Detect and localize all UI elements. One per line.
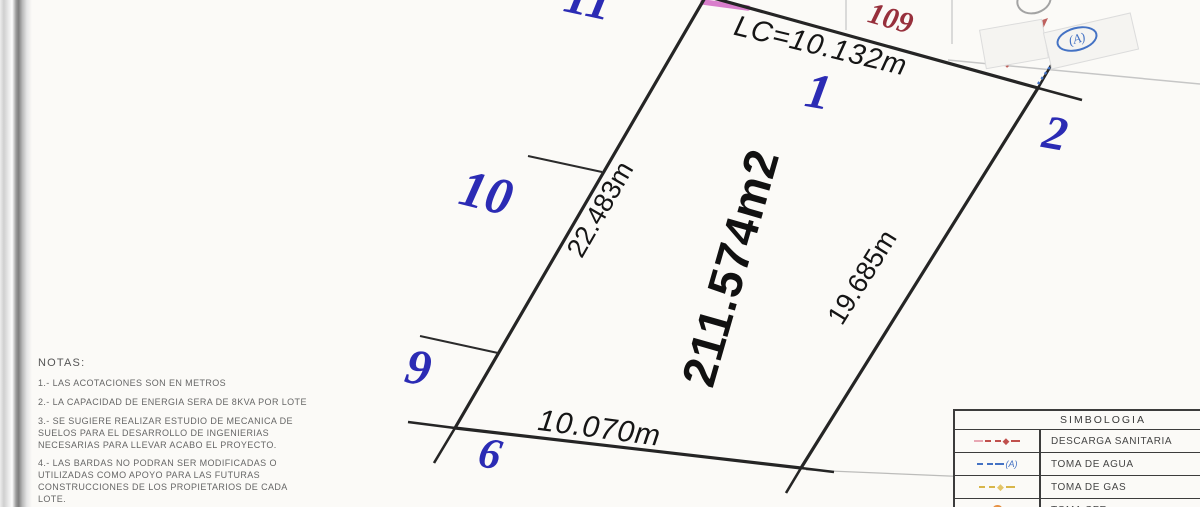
gold-dash-icon — [1006, 486, 1015, 488]
site-plan-canvas: (A) 11 1 2 10 9 6 109 LC=10.132m 22.483m… — [0, 0, 1200, 507]
legend-label: TOMA DE GAS — [1041, 476, 1200, 498]
blue-dash-icon — [995, 463, 1004, 465]
gold-dash-icon — [979, 486, 995, 488]
note-item: 2.- LA CAPACIDAD DE ENERGIA SERA DE 8KVA… — [38, 397, 430, 409]
legend-label: DESCARGA SANITARIA — [1041, 430, 1200, 452]
red-diamond-icon: ◆ — [1003, 437, 1010, 446]
corner-extension — [434, 428, 455, 463]
corner-extension — [801, 468, 834, 472]
blue-dash-icon — [977, 463, 993, 465]
toma-gas-symbol: ◆ — [955, 476, 1041, 498]
toma-agua-symbol: (A) — [955, 453, 1041, 475]
legend-row-cfe: TOMA CFE — [955, 499, 1200, 507]
legend-row-gas: ◆ TOMA DE GAS — [955, 476, 1200, 499]
legend-label: TOMA CFE — [1041, 499, 1200, 507]
notes-title: NOTAS: — [38, 357, 430, 369]
note-item: 1.- LAS ACOTACIONES SON EN METROS — [38, 378, 430, 390]
legend-title: SIMBOLOGIA — [955, 411, 1200, 430]
notes-block: NOTAS: 1.- LAS ACOTACIONES SON EN METROS… — [38, 357, 430, 507]
descarga-sanitaria-symbol: ◆ — [955, 430, 1041, 452]
legend-row-descarga: ◆ DESCARGA SANITARIA — [955, 430, 1200, 453]
lot-division-tick — [528, 156, 602, 172]
water-marker-label: (A) — [1067, 29, 1087, 49]
toma-cfe-symbol — [955, 499, 1041, 507]
note-item: 3.- SE SUGIERE REALIZAR ESTUDIO DE MECAN… — [38, 416, 430, 452]
gold-diamond-icon: ◆ — [997, 483, 1004, 492]
legend-row-agua: (A) TOMA DE AGUA — [955, 453, 1200, 476]
legend-label: TOMA DE AGUA — [1041, 453, 1200, 475]
corner-extension — [1038, 88, 1082, 100]
note-item: 4.- LAS BARDAS NO PODRAN SER MODIFICADAS… — [38, 458, 430, 506]
pink-dash-icon — [974, 440, 983, 442]
legend-table: SIMBOLOGIA ◆ DESCARGA SANITARIA (A) TOMA… — [953, 409, 1200, 507]
corner-extension — [786, 468, 801, 493]
red-dash-icon — [985, 440, 1001, 442]
water-marker-mini-label: (A) — [1006, 460, 1018, 469]
red-dash-icon — [1011, 440, 1020, 442]
